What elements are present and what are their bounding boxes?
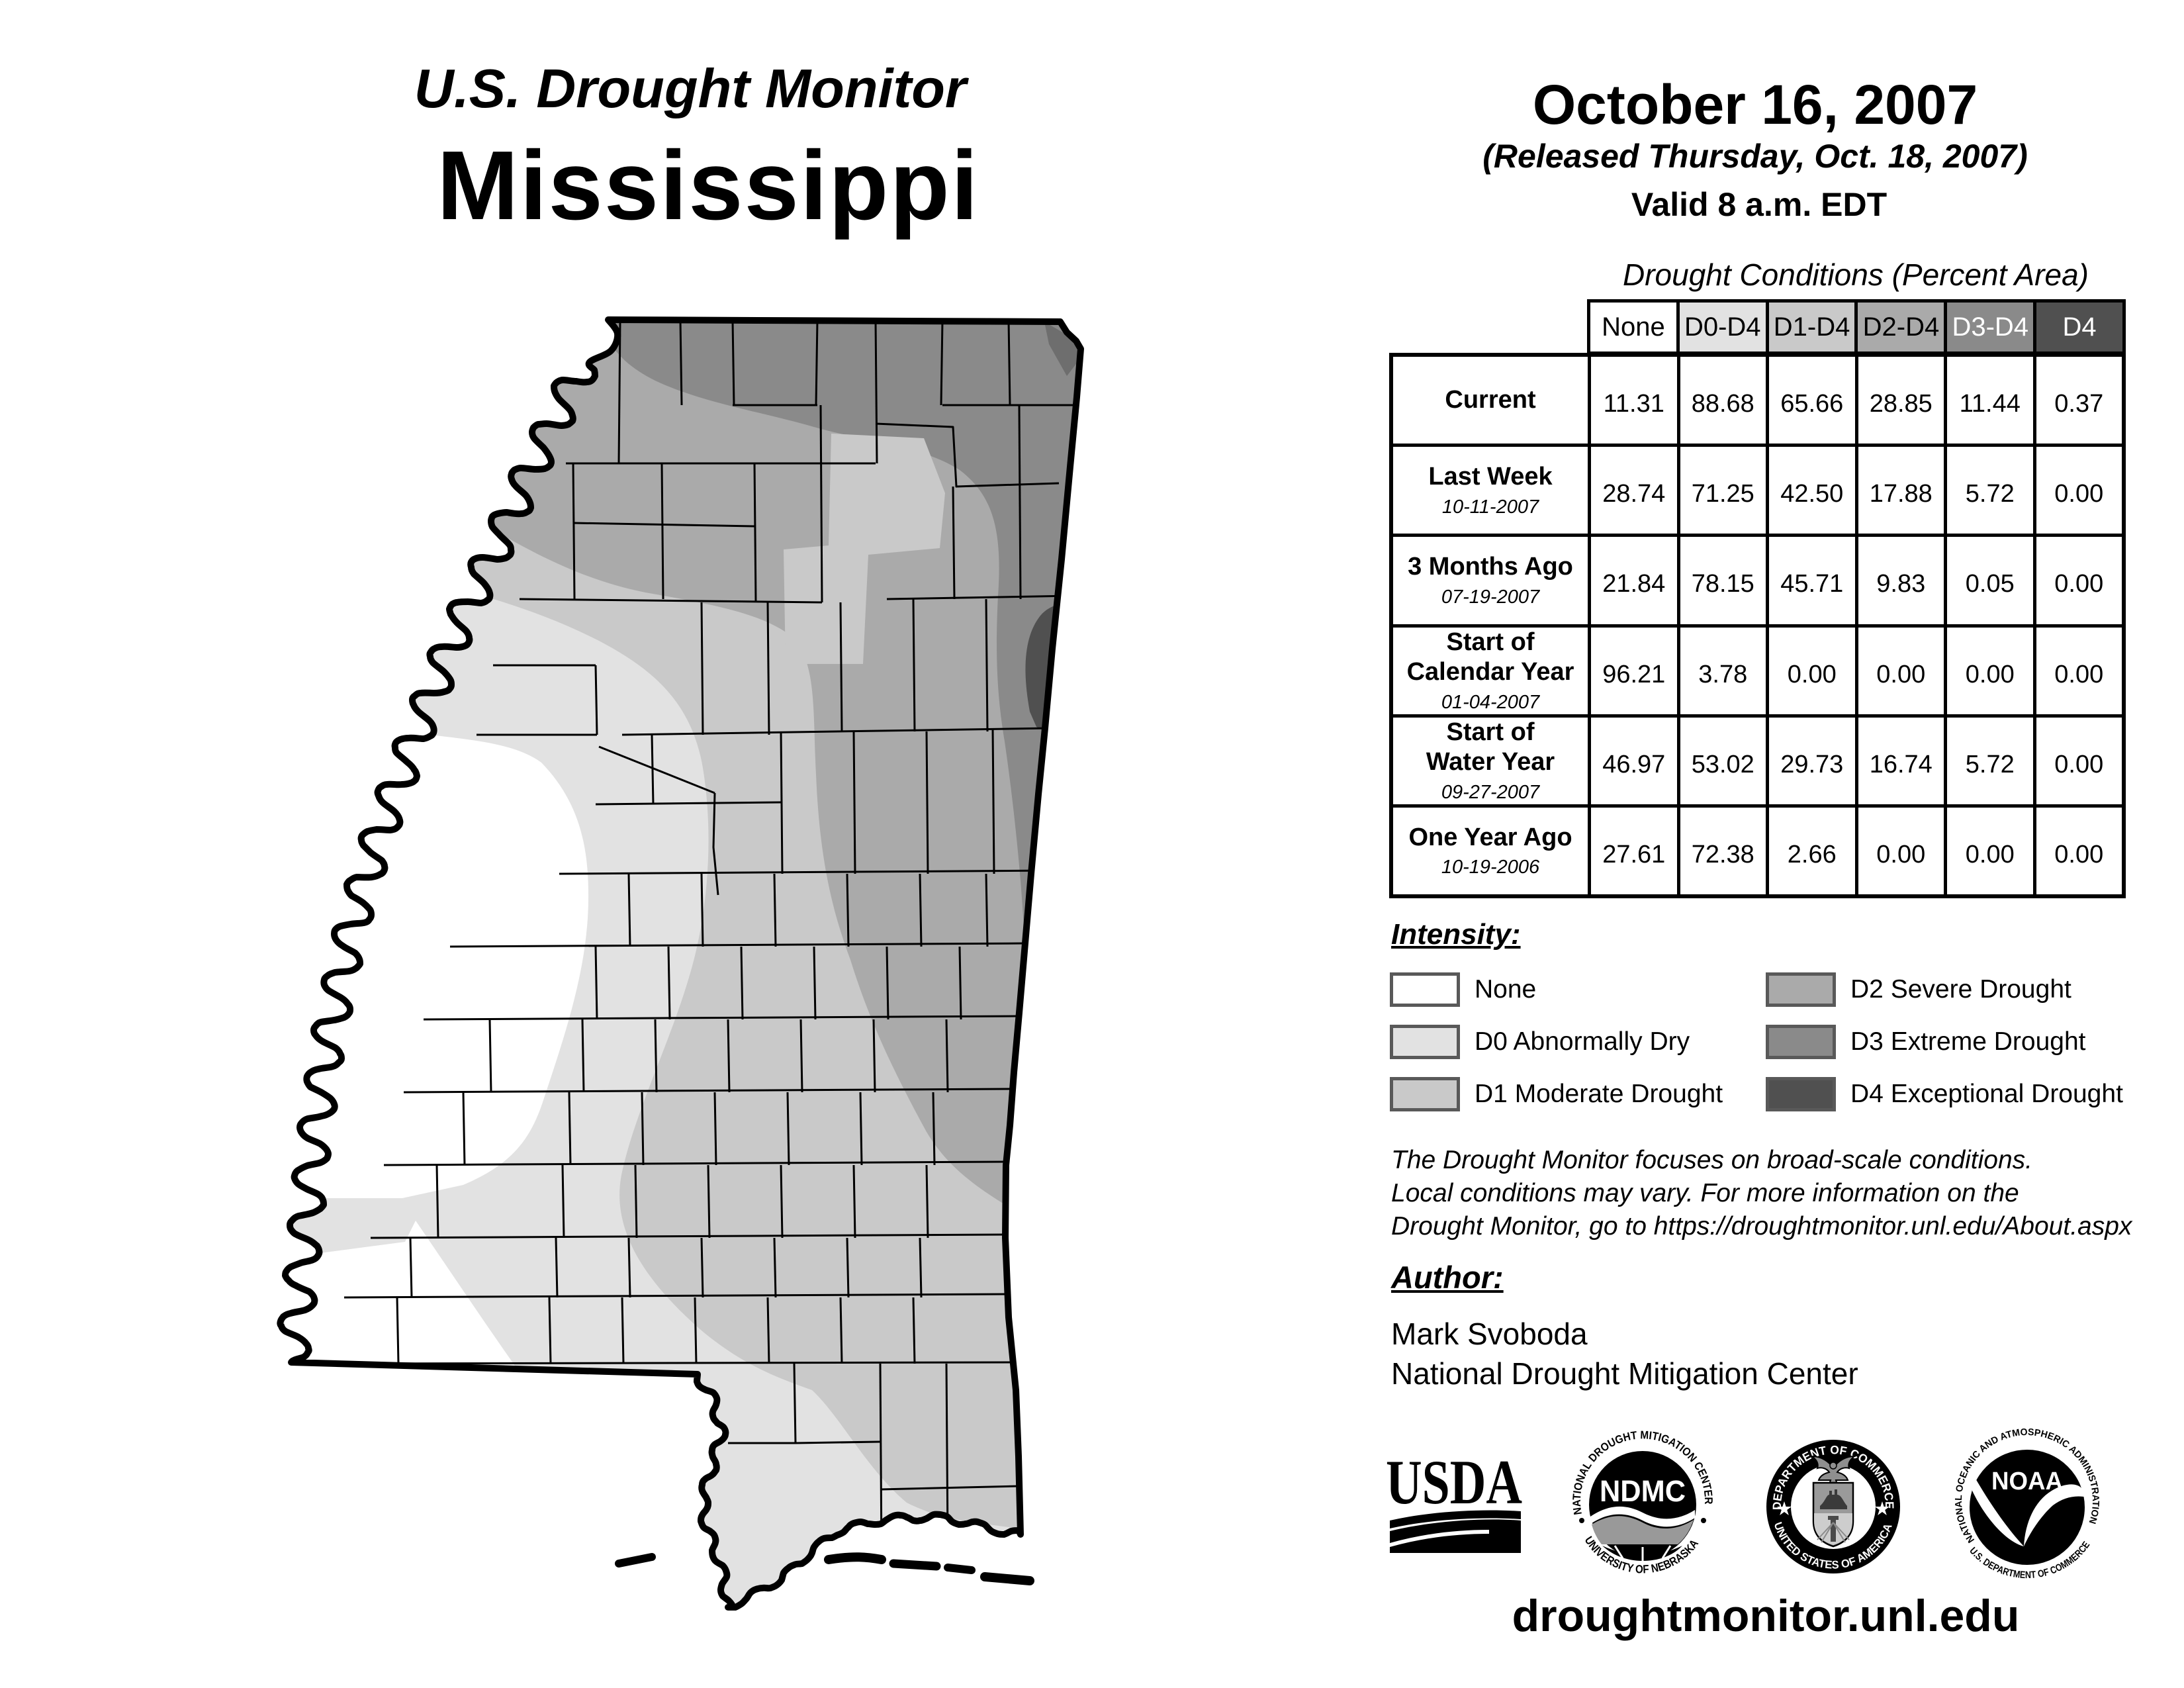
svg-text:USDA: USDA — [1386, 1447, 1522, 1517]
svg-text:NOAA: NOAA — [1991, 1468, 2063, 1495]
svg-text:NDMC: NDMC — [1600, 1474, 1686, 1508]
